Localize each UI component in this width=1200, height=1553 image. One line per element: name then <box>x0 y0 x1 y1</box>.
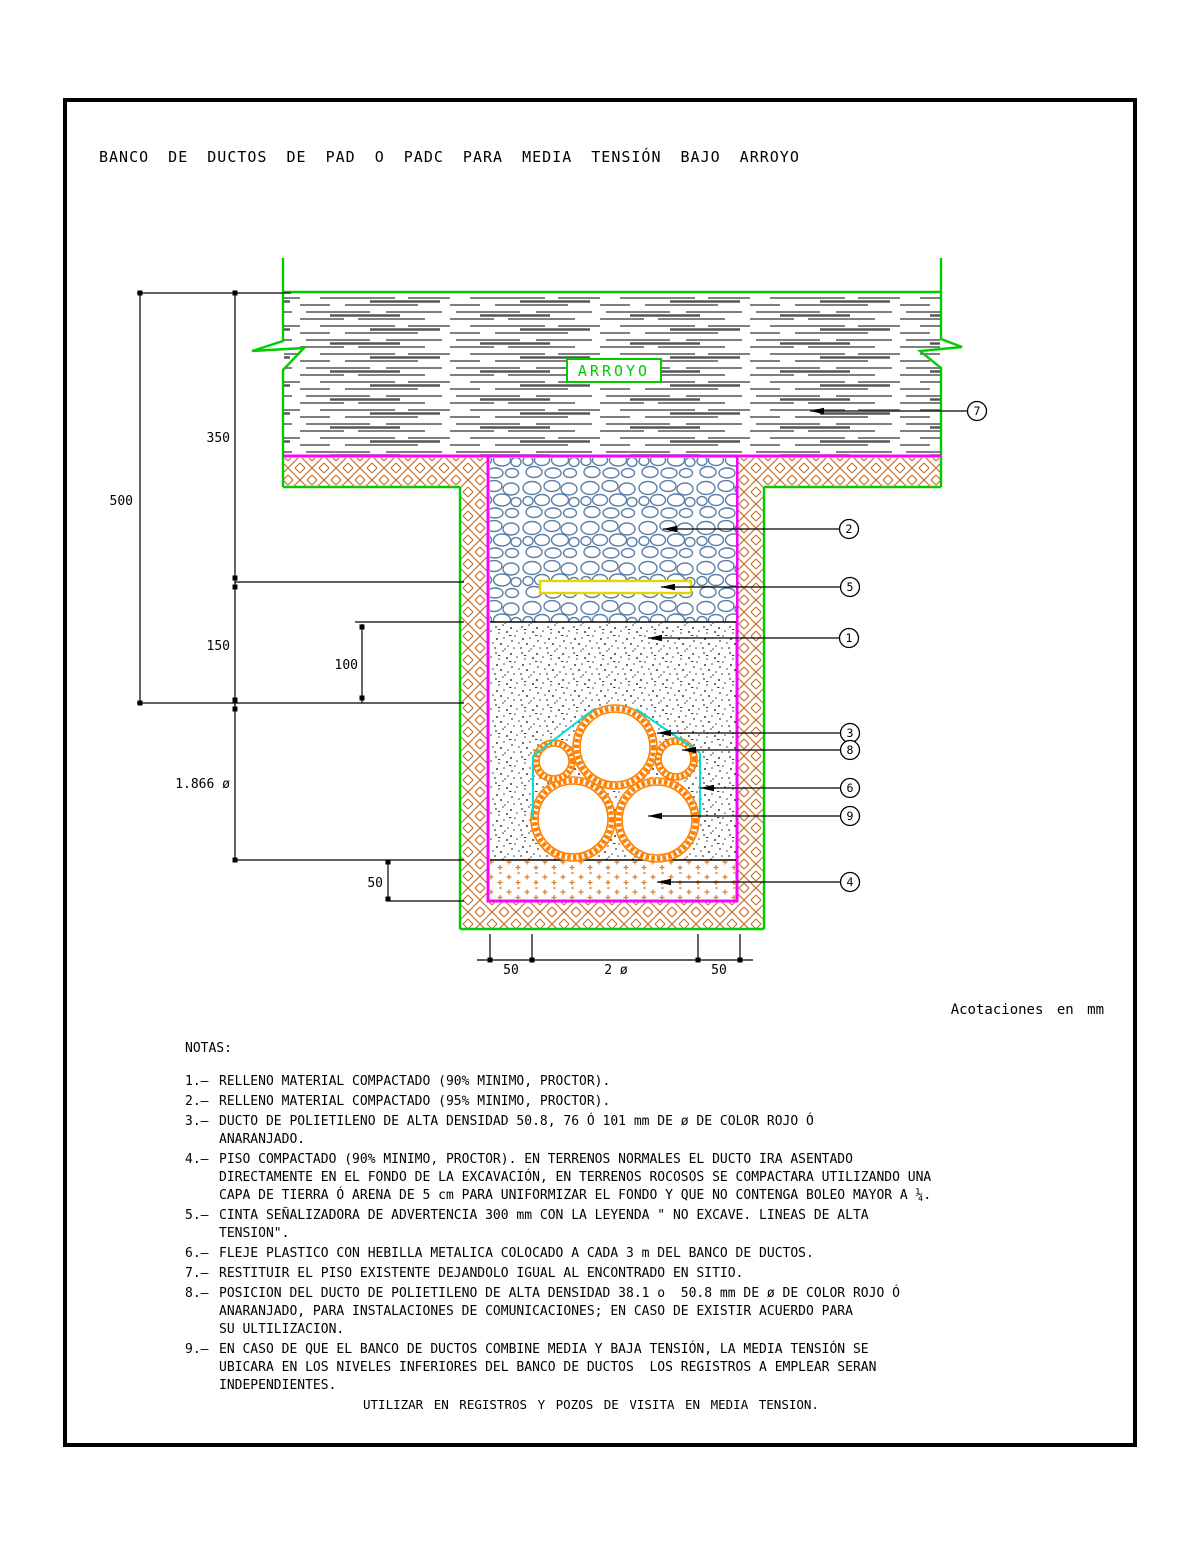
arroyo-band: ARROYO <box>252 258 962 487</box>
duct-bottom-right <box>615 778 699 862</box>
dim-100: 100 <box>335 658 358 673</box>
dim-2dia: 2 ø <box>604 963 628 978</box>
dim-50-left: 50 <box>367 876 383 891</box>
note-text: FLEJE PLASTICO CON HEBILLA METALICA COLO… <box>219 1245 1069 1263</box>
dim-350: 350 <box>207 431 230 446</box>
note-number: 7.– <box>185 1265 219 1283</box>
callout-5-number: 5 <box>847 580 854 594</box>
drawing-sheet: BANCO DE DUCTOS DE PAD O PADC PARA MEDIA… <box>0 0 1200 1553</box>
note-item-4: 4.–PISO COMPACTADO (90% MINIMO, PROCTOR)… <box>185 1151 1085 1205</box>
duct-top <box>573 705 657 789</box>
arroyo-label: ARROYO <box>578 362 650 380</box>
duct-small-left <box>533 740 575 782</box>
note-number: 5.– <box>185 1207 219 1225</box>
dim-50-bottom-left: 50 <box>503 963 519 978</box>
cross-section-diagram: ARROYO <box>0 0 1200 1000</box>
callout-1-number: 1 <box>846 631 853 645</box>
note-item-9: 9.–EN CASO DE QUE EL BANCO DE DUCTOS COM… <box>185 1341 1085 1395</box>
note-text: PISO COMPACTADO (90% MINIMO, PROCTOR). E… <box>219 1151 1069 1205</box>
note-number: 2.– <box>185 1093 219 1111</box>
note-number: 8.– <box>185 1285 219 1303</box>
callout-2-number: 2 <box>846 522 853 536</box>
note-item-2: 2.–RELLENO MATERIAL COMPACTADO (95% MINI… <box>185 1093 1085 1111</box>
duct-bottom-left <box>531 777 615 861</box>
note-text: POSICION DEL DUCTO DE POLIETILENO DE ALT… <box>219 1285 1069 1339</box>
note-item-7: 7.–RESTITUIR EL PISO EXISTENTE DEJANDOLO… <box>185 1265 1085 1283</box>
note-item-8: 8.–POSICION DEL DUCTO DE POLIETILENO DE … <box>185 1285 1085 1339</box>
stone-fill-95 <box>490 458 736 622</box>
note-text: EN CASO DE QUE EL BANCO DE DUCTOS COMBIN… <box>219 1341 1069 1395</box>
notes-block: NOTAS: 1.–RELLENO MATERIAL COMPACTADO (9… <box>185 1040 1085 1397</box>
note-item-1: 1.–RELLENO MATERIAL COMPACTADO (90% MINI… <box>185 1073 1085 1091</box>
dim-50-bottom-right: 50 <box>711 963 727 978</box>
callout-7-number: 7 <box>974 404 981 418</box>
usage-note: UTILIZAR EN REGISTROS Y POZOS DE VISITA … <box>363 1397 819 1412</box>
note-number: 6.– <box>185 1245 219 1263</box>
arroyo-label-box: ARROYO <box>567 359 661 382</box>
note-number: 9.– <box>185 1341 219 1359</box>
note-item-3: 3.–DUCTO DE POLIETILENO DE ALTA DENSIDAD… <box>185 1113 1085 1149</box>
note-text: RESTITUIR EL PISO EXISTENTE DEJANDOLO IG… <box>219 1265 1069 1283</box>
note-text: DUCTO DE POLIETILENO DE ALTA DENSIDAD 50… <box>219 1113 1069 1149</box>
dim-500: 500 <box>110 494 133 509</box>
note-item-6: 6.–FLEJE PLASTICO CON HEBILLA METALICA C… <box>185 1245 1085 1263</box>
notes-heading: NOTAS: <box>185 1040 1085 1058</box>
callout-6-number: 6 <box>847 781 854 795</box>
floor-layer <box>490 860 736 900</box>
callout-8-number: 8 <box>847 743 854 757</box>
dim-1866: 1.866 ø <box>175 777 230 792</box>
duct-small-right <box>655 738 697 780</box>
note-number: 1.– <box>185 1073 219 1091</box>
note-number: 3.– <box>185 1113 219 1131</box>
note-item-5: 5.–CINTA SEÑALIZADORA DE ADVERTENCIA 300… <box>185 1207 1085 1243</box>
note-number: 4.– <box>185 1151 219 1169</box>
dim-150: 150 <box>207 639 230 654</box>
note-text: RELLENO MATERIAL COMPACTADO (90% MINIMO,… <box>219 1073 1069 1091</box>
callout-4-number: 4 <box>847 875 854 889</box>
note-text: RELLENO MATERIAL COMPACTADO (95% MINIMO,… <box>219 1093 1069 1111</box>
note-text: CINTA SEÑALIZADORA DE ADVERTENCIA 300 mm… <box>219 1207 1069 1243</box>
callout-9-number: 9 <box>847 809 854 823</box>
units-note: Acotaciones en mm <box>900 1002 1104 1018</box>
callout-3-number: 3 <box>847 726 854 740</box>
